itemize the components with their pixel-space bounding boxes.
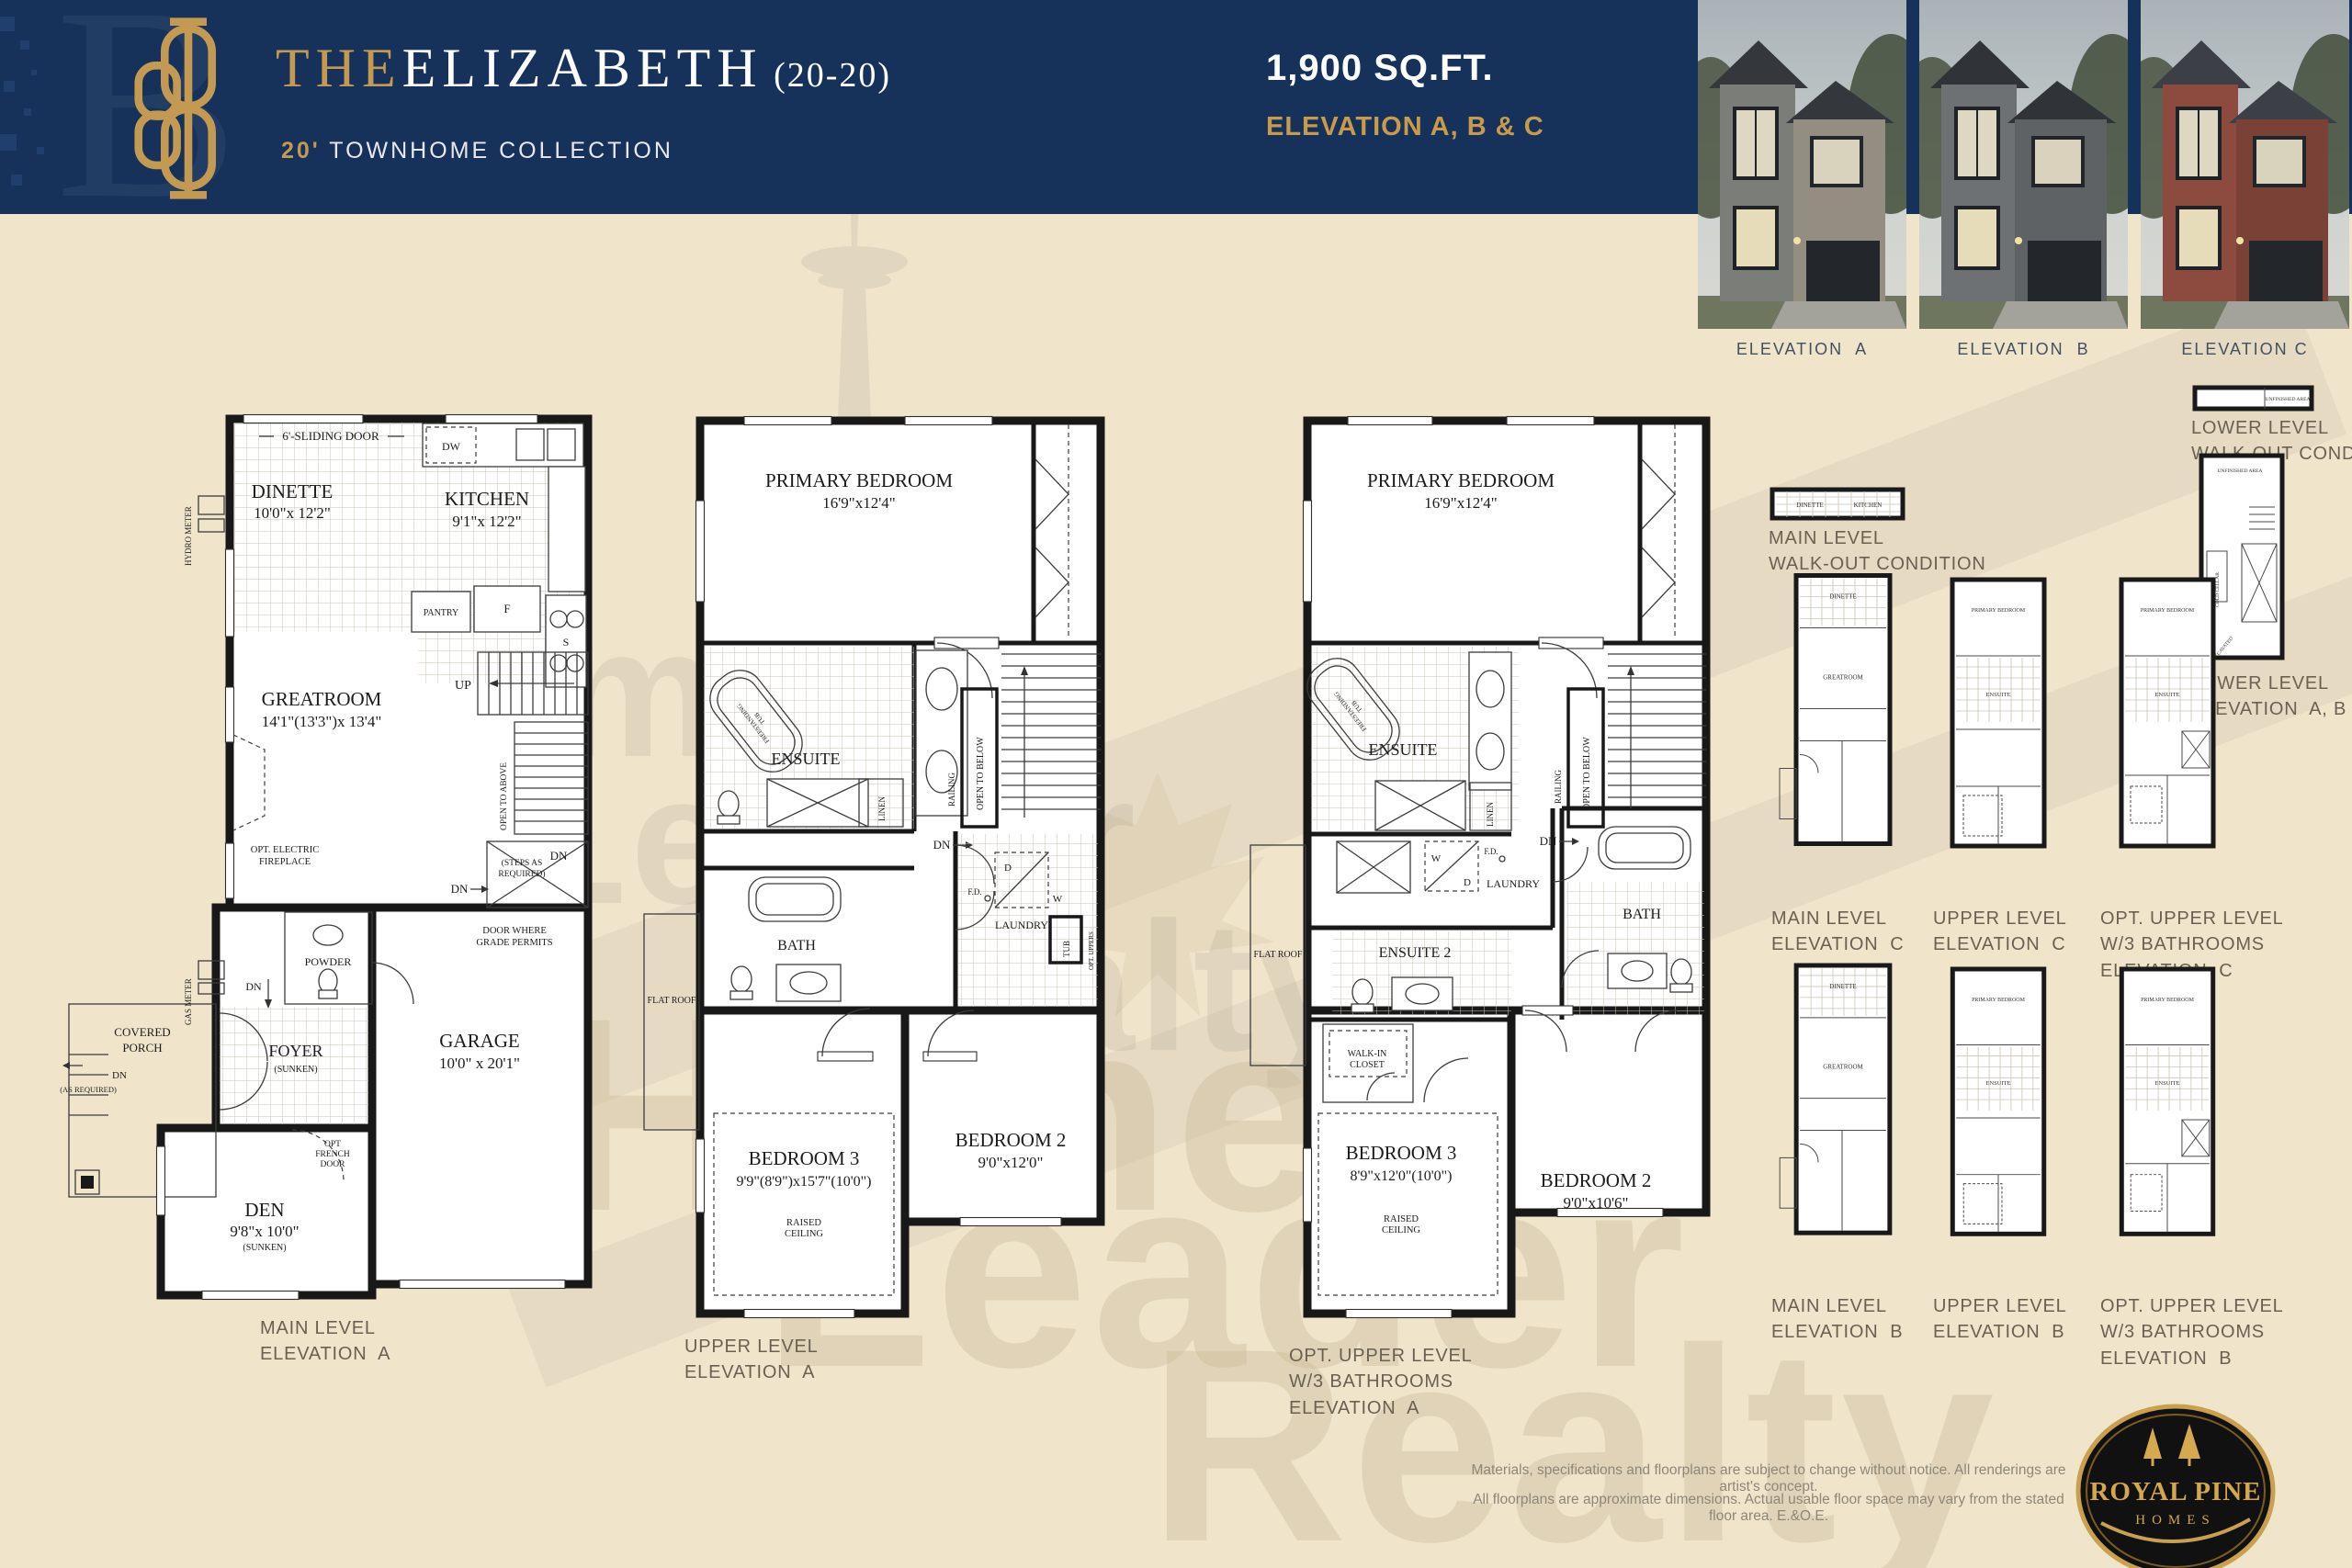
svg-text:DN: DN (112, 1070, 127, 1081)
title-name: ELIZABETH (402, 38, 763, 98)
svg-text:(SUNKEN): (SUNKEN) (274, 1065, 317, 1075)
svg-text:GAS METER: GAS METER (184, 978, 193, 1025)
svg-text:(SUNKEN): (SUNKEN) (243, 1243, 286, 1253)
mini-plan-lower-walkout: UNFINISHED AREA (2191, 384, 2315, 413)
room-label-dinette: DINETTE (252, 480, 334, 502)
room-label-foyer: FOYER (268, 1042, 322, 1060)
room-label-kitchen: KITCHEN (445, 488, 529, 510)
svg-text:CLOSET: CLOSET (1350, 1060, 1385, 1070)
elevation-photo-label: ELEVATION B (1919, 340, 2128, 359)
svg-text:GREATROOM: GREATROOM (1823, 1064, 1862, 1071)
subtitle-text: TOWNHOME COLLECTION (321, 138, 673, 164)
square-footage: 1,900 SQ.FT. (1266, 48, 1494, 89)
svg-text:DINETTE: DINETTE (1829, 593, 1857, 601)
svg-text:DW: DW (442, 440, 461, 453)
covered-porch: COVERED PORCH DN (AS REQUIRED) (60, 1025, 171, 1194)
disclaimer-line-1: Materials, specifications and floorplans… (1470, 1462, 2067, 1495)
svg-text:RAISED: RAISED (1384, 1214, 1419, 1224)
svg-text:ENSUITE: ENSUITE (2154, 692, 2179, 698)
plan-title: THEELIZABETH (20-20) (276, 37, 891, 100)
svg-text:WALK-IN: WALK-IN (1348, 1049, 1387, 1059)
svg-text:LINEN: LINEN (877, 796, 887, 821)
house-rendering (2141, 0, 2349, 329)
svg-text:ENSUITE: ENSUITE (1986, 1080, 2011, 1087)
svg-text:10'0"x 12'2": 10'0"x 12'2" (254, 504, 331, 522)
svg-text:DINETTE: DINETTE (1829, 983, 1856, 990)
collection-subtitle: 20' TOWNHOME COLLECTION (281, 138, 673, 164)
title-the: THE (276, 38, 402, 98)
svg-text:CEILING: CEILING (1382, 1225, 1420, 1235)
svg-text:D: D (1464, 877, 1471, 888)
svg-text:DN: DN (933, 838, 951, 852)
mini-plan-opt-b: PRIMARY BEDROOM ENSUITE (2101, 964, 2234, 1284)
mini-floorplan-main: DINETTE GREATROOM (1769, 570, 1916, 897)
room-label-laundry: LAUNDRY (1487, 877, 1540, 890)
svg-text:LAUNDRY: LAUNDRY (995, 919, 1048, 931)
svg-text:F.D.: F.D. (967, 887, 981, 897)
svg-text:OPT. UPPERS: OPT. UPPERS (1088, 931, 1095, 970)
svg-text:DN: DN (550, 849, 568, 863)
svg-text:F: F (503, 602, 510, 615)
title-suffix: (20-20) (763, 56, 891, 95)
room-label-garage: GARAGE (439, 1030, 520, 1052)
mini-floorplan-strip: DINETTE KITCHEN (1769, 485, 1906, 524)
svg-text:ENSUITE: ENSUITE (2155, 1080, 2180, 1087)
room-label-bath: BATH (1623, 907, 1661, 922)
room-label-bath: BATH (777, 938, 816, 953)
disclaimer-line-2: All floorplans are approximate dimension… (1470, 1492, 2067, 1525)
svg-text:RAILING: RAILING (947, 773, 956, 807)
svg-text:RAISED: RAISED (786, 1218, 821, 1228)
caption-upper-b: UPPER LEVELELEVATION B (1933, 1293, 2067, 1346)
svg-text:16'9"x12'4": 16'9"x12'4" (1424, 494, 1498, 512)
elevation-photo-b (1919, 0, 2128, 329)
room-label-primary: PRIMARY BEDROOM (1367, 469, 1555, 491)
svg-text:PRIMARY BEDROOM: PRIMARY BEDROOM (2141, 998, 2195, 1003)
svg-text:8'9"x12'0"(10'0"): 8'9"x12'0"(10'0") (1351, 1168, 1453, 1184)
svg-text:DOOR WHERE: DOOR WHERE (482, 926, 547, 936)
svg-text:HOMES: HOMES (2135, 1513, 2216, 1528)
house-rendering (1698, 0, 1906, 329)
svg-text:W: W (1431, 853, 1442, 864)
elevation-photo-label: ELEVATION A (1698, 340, 1906, 359)
mini-floorplan-strip: UNFINISHED AREA (2191, 384, 2315, 413)
elevations-available: ELEVATION A, B & C (1266, 112, 1544, 142)
laundry-room: D W F.D. LAUNDRY TUB OPT. UPPERS (955, 834, 1098, 1007)
room-label-ensuite: ENSUITE (772, 750, 841, 768)
svg-text:OPT. ELECTRIC: OPT. ELECTRIC (251, 845, 319, 855)
mini-floorplan-opt: PRIMARY BEDROOM ENSUITE (2101, 575, 2234, 897)
room-label-bed3: BEDROOM 3 (1346, 1142, 1457, 1164)
mini-floorplan-opt: PRIMARY BEDROOM ENSUITE (2101, 964, 2234, 1284)
mini-floorplan-main: DINETTE GREATROOM (1769, 961, 1916, 1284)
svg-text:FIREPLACE: FIREPLACE (259, 857, 311, 867)
caption-upper-level: UPPER LEVELELEVATION A (684, 1334, 819, 1386)
flat-roof-label: FLAT ROOF (1254, 950, 1303, 960)
svg-text:UNFINISHED AREA: UNFINISHED AREA (2265, 397, 2310, 402)
royal-pine-homes-logo: ROYAL PINE HOMES (2072, 1404, 2279, 1568)
svg-text:TUB: TUB (1062, 941, 1071, 957)
room-label-den: DEN (244, 1199, 284, 1221)
caption-opt-b: OPT. UPPER LEVELW/3 BATHROOMSELEVATION B (2100, 1293, 2284, 1371)
svg-text:POWDER: POWDER (305, 955, 352, 968)
svg-text:(STEPS AS: (STEPS AS (502, 858, 543, 868)
svg-text:PANTRY: PANTRY (424, 608, 459, 618)
svg-text:OPEN TO BELOW: OPEN TO BELOW (1582, 737, 1592, 810)
sliding-door-label: 6'-SLIDING DOOR (282, 429, 379, 443)
svg-text:14'1"(13'3")x 13'4": 14'1"(13'3")x 13'4" (262, 713, 382, 730)
mini-plan-opt-c: PRIMARY BEDROOM ENSUITE (2101, 575, 2234, 897)
svg-text:S: S (563, 636, 570, 649)
svg-text:ENSUITE: ENSUITE (1985, 692, 2010, 698)
svg-text:GREATROOM: GREATROOM (1823, 674, 1863, 682)
svg-text:PRIMARY BEDROOM: PRIMARY BEDROOM (1972, 998, 2026, 1003)
svg-text:OPEN TO ABOVE: OPEN TO ABOVE (500, 762, 509, 830)
svg-text:ROYAL PINE: ROYAL PINE (2089, 1477, 2261, 1506)
room-label-ensuite2: ENSUITE 2 (1379, 945, 1452, 961)
floorplan-upper-level: PRIMARY BEDROOM 16'9"x12'4" FREESTANDING… (639, 413, 1107, 1341)
caption-main-b: MAIN LEVELELEVATION B (1771, 1293, 1903, 1346)
svg-text:DN: DN (245, 980, 262, 993)
svg-text:LINEN: LINEN (1486, 802, 1495, 827)
svg-text:DN: DN (1540, 834, 1557, 848)
svg-text:9'0"x12'0": 9'0"x12'0" (978, 1154, 1043, 1171)
svg-text:9'1"x 12'2": 9'1"x 12'2" (452, 513, 521, 530)
caption-main-c: MAIN LEVELELEVATION C (1771, 906, 1904, 958)
room-label-bed2: BEDROOM 2 (1541, 1169, 1652, 1191)
mini-plan-upper-b: PRIMARY BEDROOM ENSUITE (1932, 964, 2065, 1284)
mini-floorplan-upper: PRIMARY BEDROOM ENSUITE (1932, 575, 2065, 897)
svg-text:OPT: OPT (324, 1140, 341, 1149)
caption-main-level: MAIN LEVELELEVATION A (260, 1315, 390, 1368)
caption-opt-upper-level: OPT. UPPER LEVELW/3 BATHROOMSELEVATION A (1289, 1343, 1473, 1421)
pixel-pattern (0, 0, 110, 214)
svg-text:UNFINISHED AREA: UNFINISHED AREA (2217, 468, 2262, 474)
svg-text:9'0"x10'6": 9'0"x10'6" (1563, 1194, 1628, 1212)
svg-text:(AS REQUIRED): (AS REQUIRED) (60, 1085, 117, 1094)
svg-text:16'9"x12'4": 16'9"x12'4" (822, 494, 896, 512)
svg-text:RAILING: RAILING (1554, 770, 1563, 804)
svg-text:9'8"x 10'0": 9'8"x 10'0" (230, 1223, 299, 1240)
svg-text:PRIMARY BEDROOM: PRIMARY BEDROOM (1972, 608, 2026, 614)
caption-upper-c: UPPER LEVELELEVATION C (1933, 906, 2067, 958)
subtitle-number: 20' (281, 138, 321, 164)
floorplan-sheet: Home Leader Realty Home Leader Realty B (0, 0, 2352, 1568)
svg-text:DN: DN (451, 882, 469, 896)
elevation-photo-label: ELEVATION C (2141, 340, 2349, 359)
svg-text:OPEN TO BELOW: OPEN TO BELOW (976, 737, 986, 810)
svg-text:DOOR: DOOR (321, 1160, 346, 1169)
mini-plan-main-c: DINETTE GREATROOM (1769, 570, 1916, 897)
svg-text:W: W (1053, 894, 1063, 905)
mini-plan-main-b: DINETTE GREATROOM (1769, 961, 1916, 1284)
elevation-photo-c (2141, 0, 2349, 329)
room-label-bed3: BEDROOM 3 (749, 1147, 860, 1169)
svg-text:D: D (1004, 863, 1012, 874)
svg-text:CEILING: CEILING (785, 1229, 823, 1239)
svg-text:UP: UP (455, 679, 471, 693)
flat-roof-label: FLAT ROOF (648, 996, 696, 1006)
mini-plan-main-walkout: DINETTE KITCHEN (1769, 485, 1906, 524)
mini-plan-upper-c: PRIMARY BEDROOM ENSUITE (1932, 575, 2065, 897)
elevation-photo-a (1698, 0, 1906, 329)
svg-text:GRADE PERMITS: GRADE PERMITS (476, 938, 552, 948)
svg-text:9'9"(8'9")x15'7"(10'0"): 9'9"(8'9")x15'7"(10'0") (737, 1174, 872, 1190)
svg-text:PRIMARY BEDROOM: PRIMARY BEDROOM (2141, 608, 2195, 614)
house-rendering (1919, 0, 2128, 329)
floorplan-main-level: DW S PANTRY F HYDRO METER GAS METER (55, 412, 593, 1307)
svg-text:REQUIRED): REQUIRED) (498, 869, 545, 879)
svg-text:F.D.: F.D. (1484, 847, 1498, 856)
room-label-primary: PRIMARY BEDROOM (765, 469, 953, 491)
svg-text:COVERED: COVERED (114, 1025, 170, 1039)
room-label-bed2: BEDROOM 2 (955, 1129, 1067, 1151)
room-label-greatroom: GREATROOM (262, 688, 382, 710)
svg-text:PORCH: PORCH (122, 1041, 162, 1055)
svg-text:10'0" x 20'1": 10'0" x 20'1" (439, 1055, 520, 1072)
floorplan-opt-upper-level: PRIMARY BEDROOM 16'9"x12'4" FREESTANDING… (1245, 413, 1723, 1341)
mini-floorplan-upper: PRIMARY BEDROOM ENSUITE (1932, 964, 2065, 1284)
svg-text:FRENCH: FRENCH (315, 1150, 350, 1159)
svg-text:KITCHEN: KITCHEN (1854, 502, 1883, 509)
room-label-ensuite: ENSUITE (1369, 740, 1438, 759)
svg-text:HYDRO METER: HYDRO METER (184, 506, 193, 566)
builder-logo-icon (110, 17, 266, 200)
svg-text:DINETTE: DINETTE (1796, 502, 1824, 509)
